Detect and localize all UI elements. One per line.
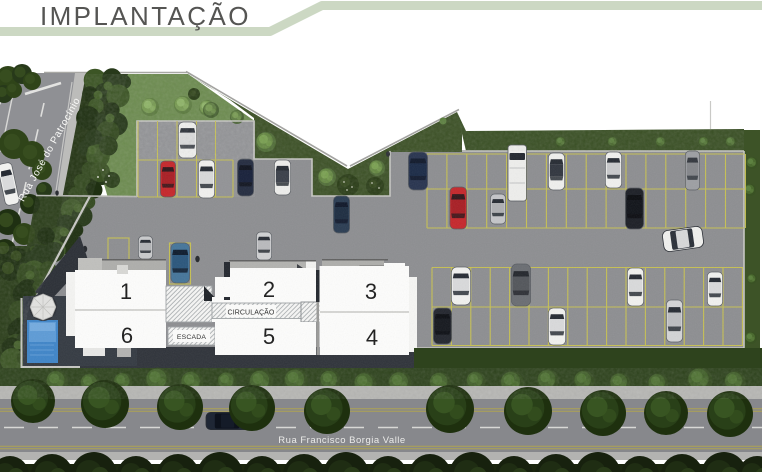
svg-text:IMPLANTAÇÃO: IMPLANTAÇÃO <box>40 1 251 31</box>
svg-text:Rua Francisco Borgia Valle: Rua Francisco Borgia Valle <box>278 435 405 446</box>
